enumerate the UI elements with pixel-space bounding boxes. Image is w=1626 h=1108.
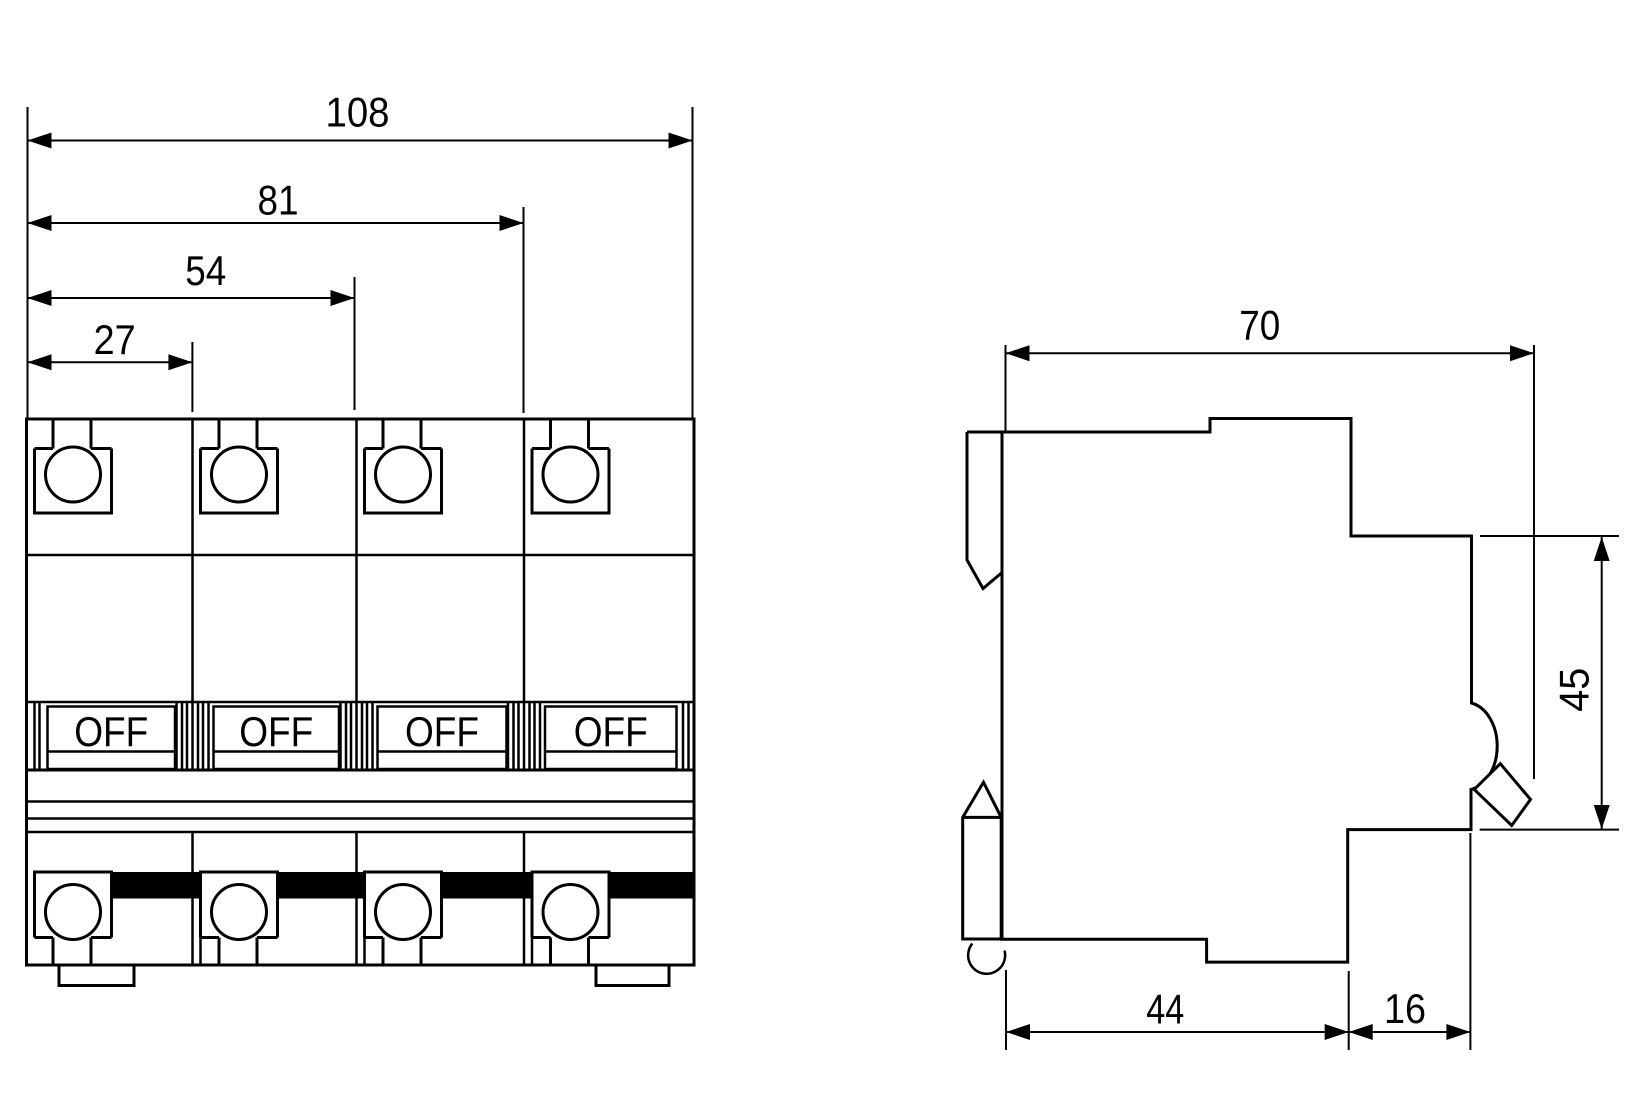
svg-text:OFF: OFF [74,708,148,755]
svg-text:44: 44 [1146,986,1184,1033]
svg-text:108: 108 [326,89,390,136]
svg-text:81: 81 [258,177,299,224]
svg-text:54: 54 [185,247,226,294]
svg-text:45: 45 [1551,668,1598,712]
svg-text:OFF: OFF [574,708,648,755]
svg-text:OFF: OFF [405,708,479,755]
svg-text:70: 70 [1239,302,1280,349]
svg-text:OFF: OFF [239,708,313,755]
svg-text:16: 16 [1384,985,1426,1032]
svg-text:27: 27 [94,316,136,363]
